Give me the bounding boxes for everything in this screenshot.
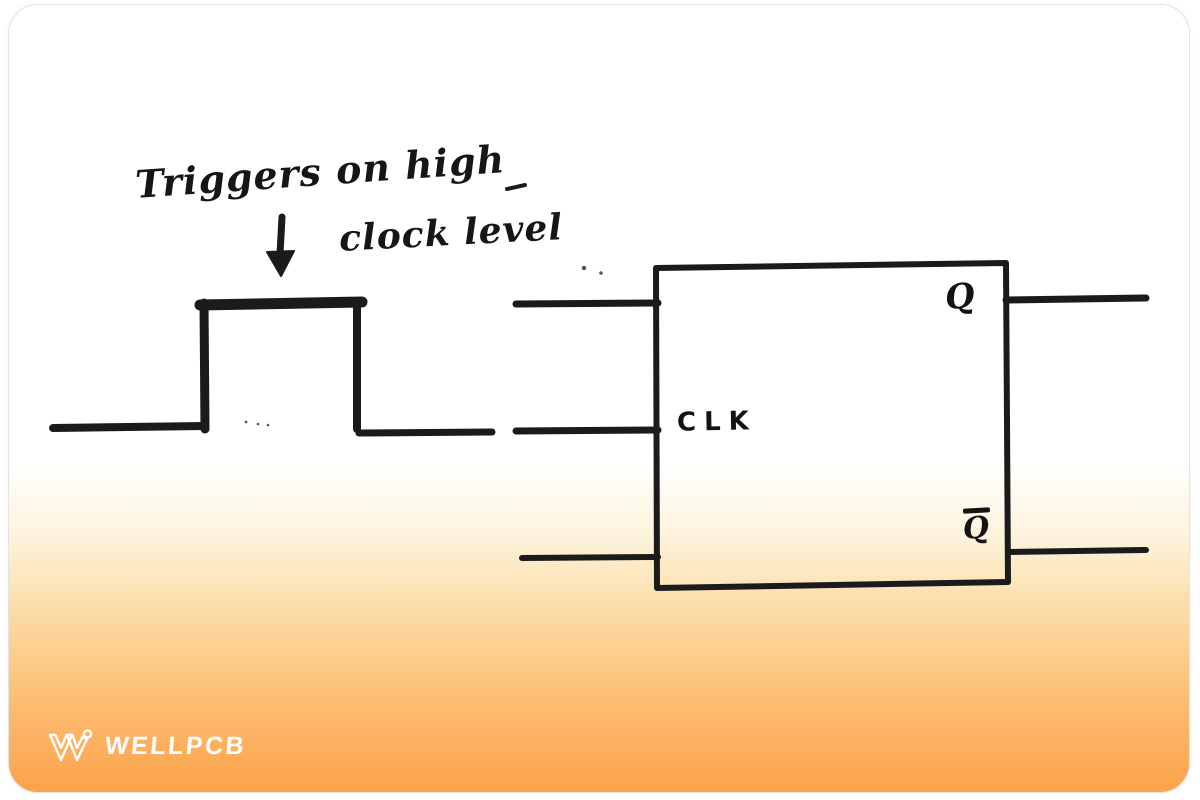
ink-speckles bbox=[245, 266, 603, 427]
down-arrow-icon bbox=[267, 217, 294, 276]
wellpcb-logo: WELLPCB bbox=[45, 726, 246, 766]
wellpcb-w-icon bbox=[45, 726, 95, 766]
wire-input-clk bbox=[516, 430, 658, 431]
q-bar-letter: Q bbox=[958, 513, 994, 546]
q-label: Q bbox=[943, 276, 977, 319]
stray-dash bbox=[507, 185, 525, 189]
clock-pulse-waveform bbox=[53, 302, 492, 433]
wire-input-bottom bbox=[522, 557, 658, 558]
wire-input-top bbox=[516, 303, 658, 304]
brand-text: WELLPCB bbox=[104, 732, 248, 761]
circuit-diagram bbox=[9, 5, 1190, 793]
page: Triggers on high clock level CLK Q Q WEL… bbox=[0, 0, 1200, 800]
wire-output-qbar bbox=[1008, 550, 1146, 552]
clk-label: CLK bbox=[677, 406, 757, 437]
q-bar-label: Q bbox=[959, 508, 993, 544]
wire-output-q bbox=[1006, 298, 1146, 300]
content-card: Triggers on high clock level CLK Q Q WEL… bbox=[8, 4, 1190, 793]
